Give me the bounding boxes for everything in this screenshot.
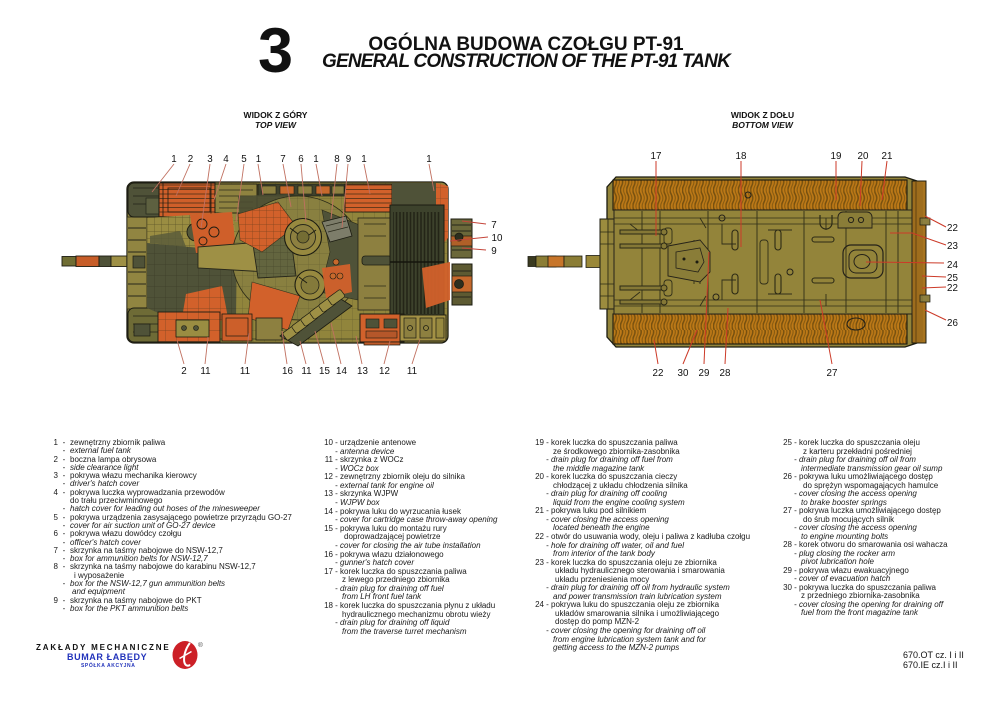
svg-text:2: 2 bbox=[181, 366, 186, 377]
svg-text:1: 1 bbox=[171, 154, 176, 165]
svg-text:15: 15 bbox=[319, 366, 330, 377]
svg-text:1: 1 bbox=[313, 154, 318, 165]
svg-text:26: 26 bbox=[947, 318, 958, 329]
svg-text:4: 4 bbox=[223, 154, 229, 165]
svg-text:23: 23 bbox=[947, 241, 958, 252]
svg-text:24: 24 bbox=[947, 260, 958, 271]
svg-text:29: 29 bbox=[699, 368, 710, 379]
svg-text:27: 27 bbox=[827, 368, 838, 379]
svg-text:11: 11 bbox=[200, 366, 210, 377]
svg-text:22: 22 bbox=[947, 223, 958, 234]
svg-text:5: 5 bbox=[241, 154, 247, 165]
svg-text:28: 28 bbox=[720, 368, 731, 379]
svg-text:22: 22 bbox=[653, 368, 664, 379]
svg-text:30: 30 bbox=[678, 368, 689, 379]
svg-text:11: 11 bbox=[240, 366, 250, 377]
svg-text:20: 20 bbox=[858, 151, 869, 162]
svg-text:10: 10 bbox=[492, 233, 503, 244]
svg-text:9: 9 bbox=[346, 154, 351, 165]
svg-text:19: 19 bbox=[831, 151, 842, 162]
svg-text:17: 17 bbox=[651, 151, 662, 162]
svg-text:®: ® bbox=[198, 641, 203, 649]
svg-text:7: 7 bbox=[280, 154, 285, 165]
svg-text:12: 12 bbox=[379, 366, 390, 377]
svg-text:1: 1 bbox=[426, 154, 431, 165]
svg-text:2: 2 bbox=[188, 154, 193, 165]
svg-text:22: 22 bbox=[947, 283, 958, 294]
svg-text:16: 16 bbox=[282, 366, 293, 377]
svg-text:7: 7 bbox=[491, 220, 496, 231]
svg-text:11: 11 bbox=[407, 366, 417, 377]
svg-text:11: 11 bbox=[301, 366, 311, 377]
svg-text:3: 3 bbox=[207, 154, 213, 165]
svg-text:1: 1 bbox=[256, 154, 261, 165]
svg-text:8: 8 bbox=[334, 154, 340, 165]
svg-text:6: 6 bbox=[298, 154, 304, 165]
svg-text:14: 14 bbox=[336, 366, 347, 377]
svg-text:21: 21 bbox=[882, 151, 893, 162]
svg-text:13: 13 bbox=[357, 366, 368, 377]
svg-text:1: 1 bbox=[361, 154, 366, 165]
svg-text:18: 18 bbox=[736, 151, 747, 162]
svg-text:9: 9 bbox=[491, 246, 496, 257]
